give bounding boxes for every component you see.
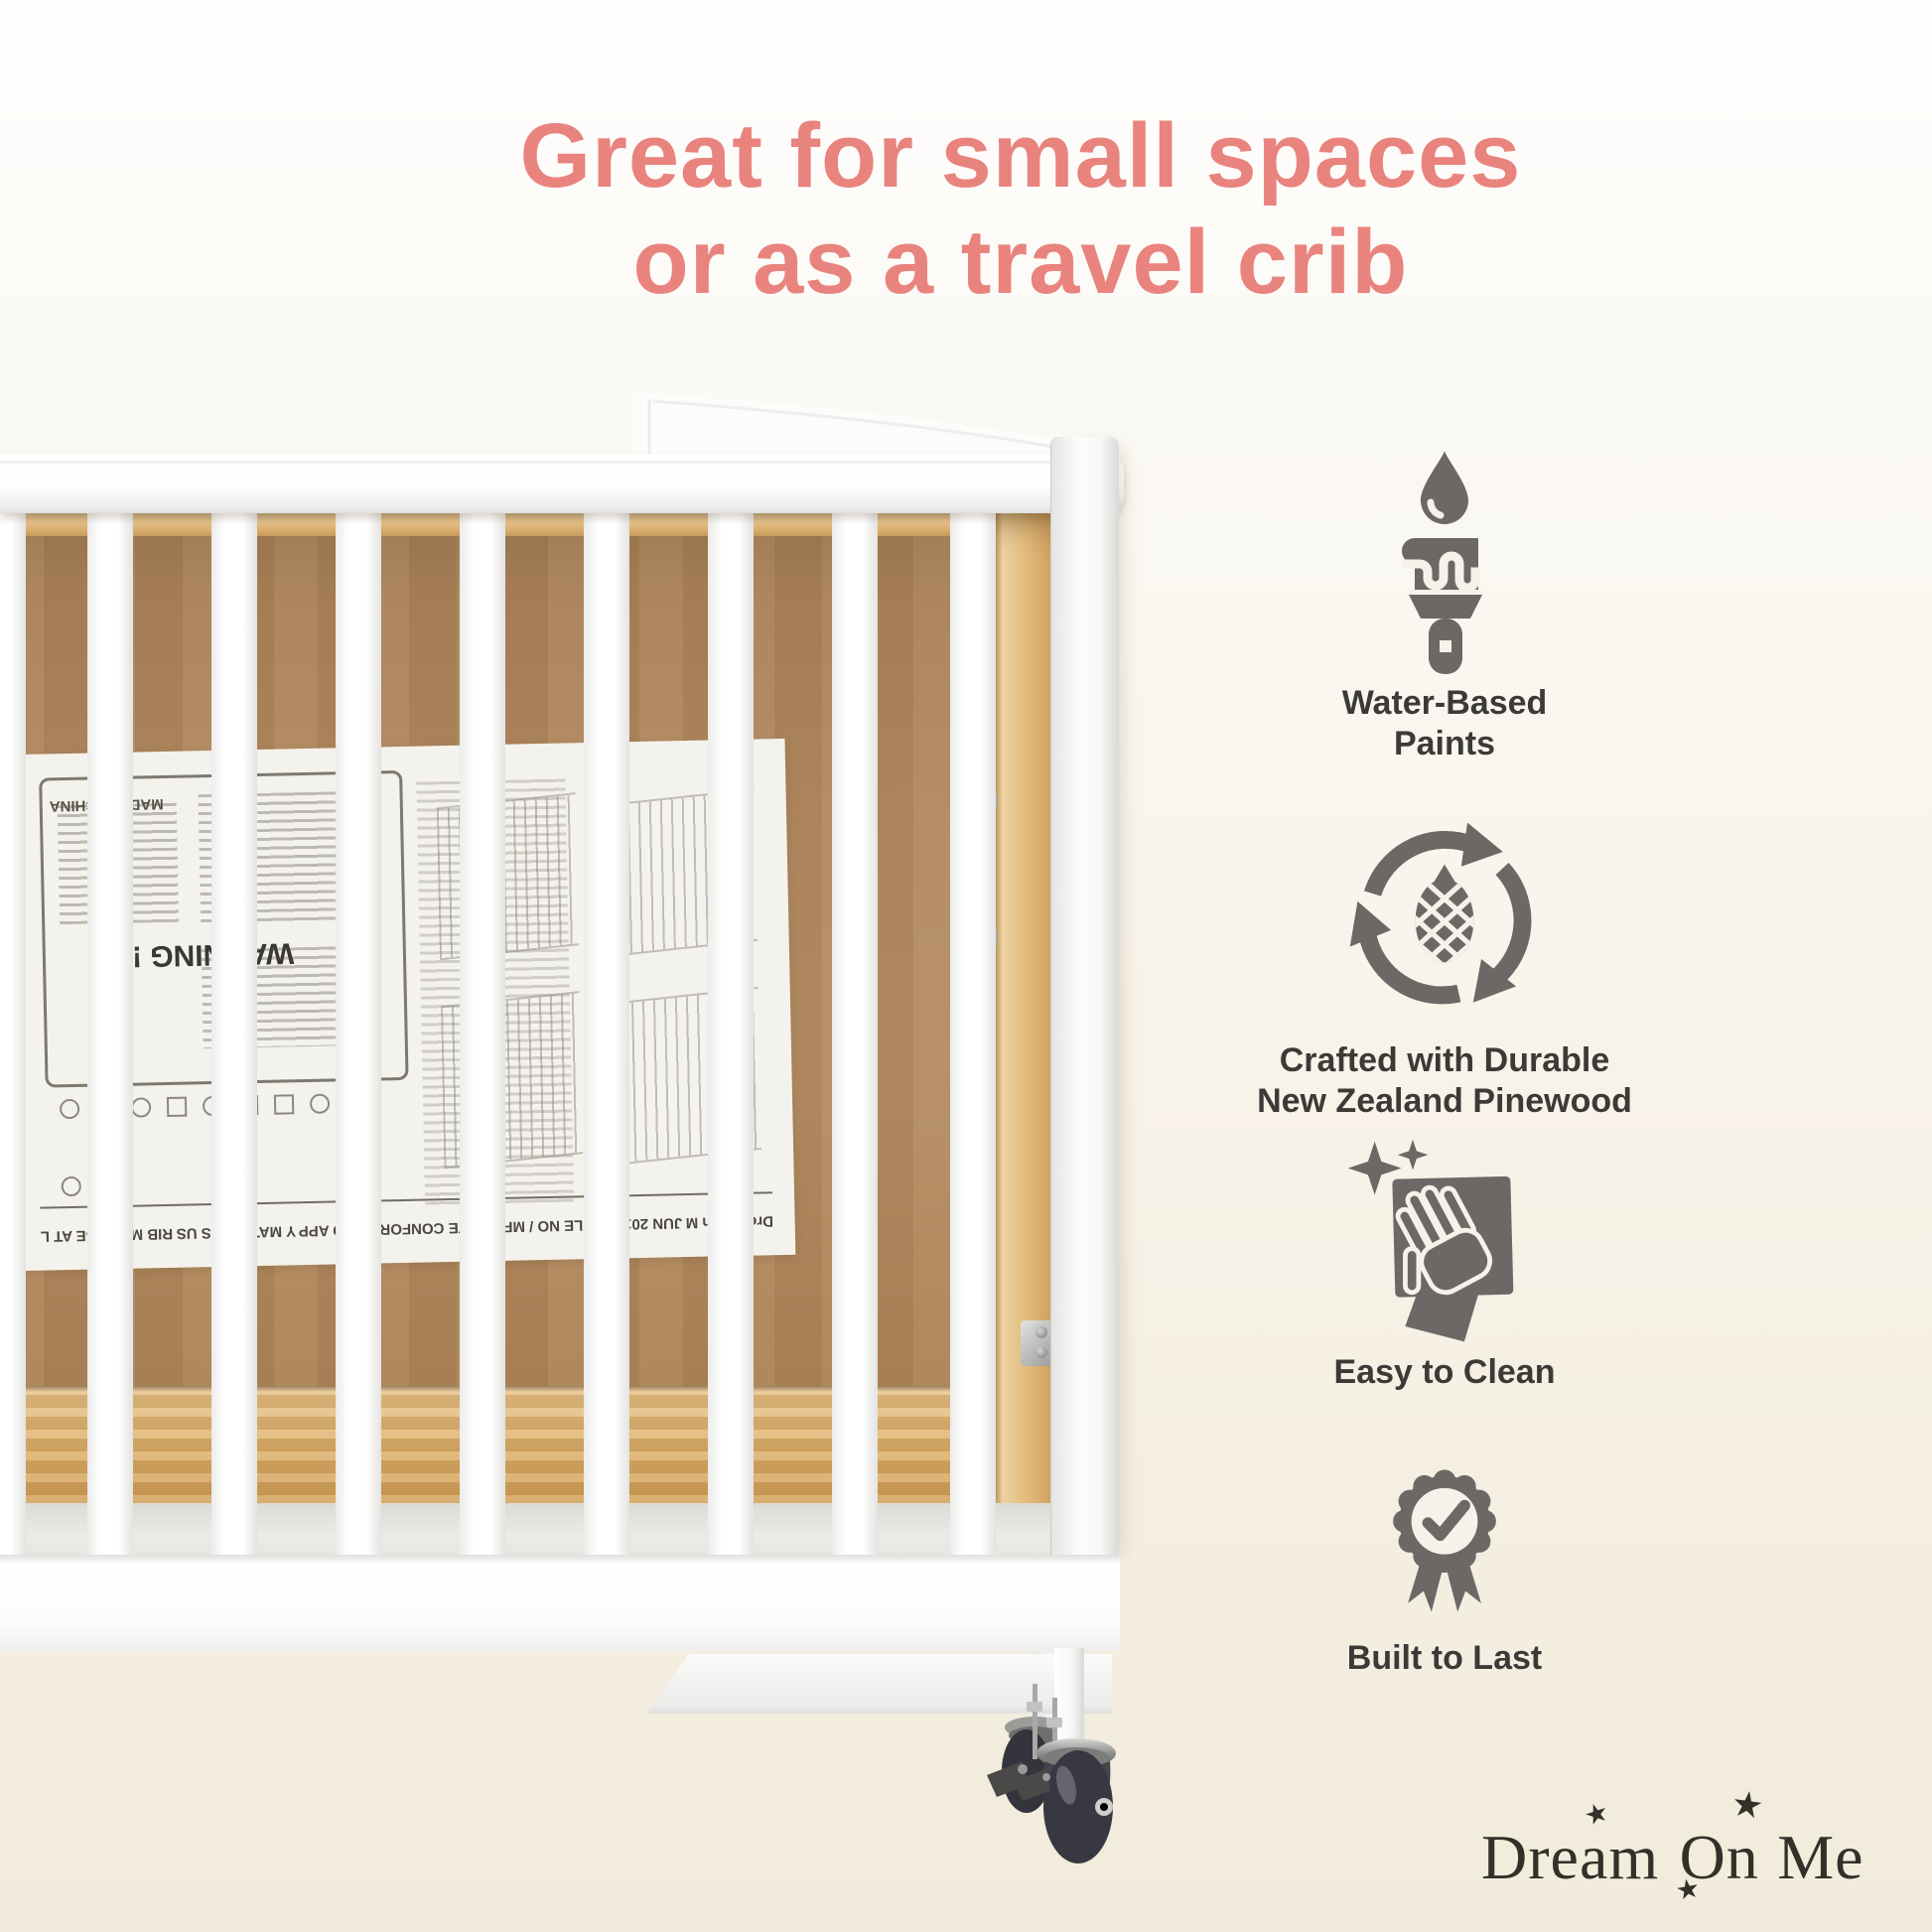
feature-label-line: Paints bbox=[1226, 724, 1663, 764]
logo-star-icon: ★ bbox=[1728, 1783, 1766, 1828]
crib-slat bbox=[832, 501, 878, 1560]
crib-slat bbox=[460, 501, 505, 1560]
lower-panel-shadow bbox=[0, 1503, 1052, 1559]
front-caster-wheel bbox=[1005, 1684, 1144, 1882]
crib-slat bbox=[211, 501, 257, 1560]
pine-bottom-rail bbox=[0, 1386, 1052, 1503]
logo-word-dream: Dream bbox=[1481, 1822, 1659, 1892]
award-badge-check-icon bbox=[1379, 1465, 1510, 1631]
crib-slat bbox=[584, 501, 629, 1560]
paintbrush-water-droplet-icon bbox=[1397, 449, 1492, 679]
assembly-diagram bbox=[437, 792, 579, 960]
crib-top-rail bbox=[0, 454, 1124, 513]
brand-logo-text: Dream On Me bbox=[1481, 1821, 1864, 1894]
feature-label-line: Water-Based bbox=[1226, 683, 1663, 724]
pine-top-rail bbox=[0, 510, 1052, 536]
feature-label-line: Easy to Clean bbox=[1226, 1352, 1663, 1393]
feature-label-built-to-last: Built to Last bbox=[1226, 1638, 1663, 1679]
brand-logo: Dream On Me ★ ★ ★ bbox=[1481, 1811, 1888, 1920]
crib-slat bbox=[0, 501, 26, 1560]
crib-slat bbox=[87, 501, 133, 1560]
feature-label-line: Built to Last bbox=[1226, 1638, 1663, 1679]
crib-slat bbox=[708, 501, 754, 1560]
hand-wipe-sparkle-icon bbox=[1342, 1136, 1533, 1349]
crib-slat bbox=[336, 501, 381, 1560]
feature-label-easy-to-clean: Easy to Clean bbox=[1226, 1352, 1663, 1393]
feature-label-line: Crafted with Durable bbox=[1226, 1040, 1663, 1081]
crib-bottom-apron bbox=[0, 1555, 1120, 1651]
crib-slat bbox=[950, 501, 996, 1560]
logo-word-me: Me bbox=[1777, 1822, 1863, 1892]
feature-label-pinewood: Crafted with Durable New Zealand Pinewoo… bbox=[1226, 1040, 1663, 1123]
product-infographic: Great for small spaces or as a travel cr… bbox=[0, 0, 1932, 1932]
crib-corner-post bbox=[1050, 437, 1119, 1564]
recycle-pinecone-icon bbox=[1340, 810, 1549, 1019]
feature-label-water-based-paints: Water-Based Paints bbox=[1226, 683, 1663, 765]
logo-star-icon: ★ bbox=[1673, 1872, 1702, 1907]
feature-label-line: New Zealand Pinewood bbox=[1226, 1081, 1663, 1122]
